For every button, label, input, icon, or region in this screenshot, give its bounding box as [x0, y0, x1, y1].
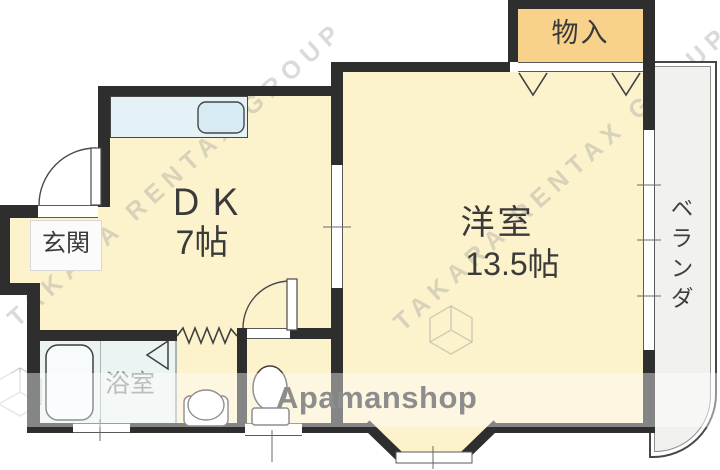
floorplan-canvas: ベランダ TAKARA RENTAX GROUP TAKARA RENTAX G…: [0, 0, 720, 470]
entrance-label: 玄関: [30, 231, 102, 256]
entrance-door-arc: [39, 148, 96, 205]
sliding-door-opening: [331, 165, 343, 288]
wall-western-right-upper: [643, 62, 655, 130]
veranda-label: ベランダ: [663, 196, 697, 316]
room-dk-size: 7帖: [142, 226, 262, 262]
wall-dk-left: [98, 86, 110, 207]
western-right-window: [643, 130, 655, 350]
wall-middle-upper: [331, 62, 343, 165]
room-western-size: 13.5帖: [445, 248, 580, 282]
closet-opening: [518, 62, 643, 72]
room-western-label: 洋室: [430, 206, 565, 242]
watermark-brand-text: Apamanshop: [276, 380, 477, 416]
bay-window-glass: [396, 452, 472, 463]
wall-closet-top: [508, 0, 655, 9]
wall-outer-left: [0, 205, 10, 295]
bay-window-wall-left: [366, 424, 399, 456]
room-dk-label: ＤＫ: [147, 184, 267, 222]
wall-dk-top: [98, 86, 343, 96]
wall-bathroom-top: [27, 330, 177, 341]
entrance-door-opening: [38, 205, 98, 218]
kitchen-counter: [110, 96, 248, 138]
wall-western-top: [331, 62, 510, 72]
toilet-door-opening: [247, 328, 290, 339]
storage-closet-label: 物入: [518, 19, 643, 47]
wall-closet-right: [643, 0, 655, 62]
wall-closet-left: [508, 0, 518, 62]
